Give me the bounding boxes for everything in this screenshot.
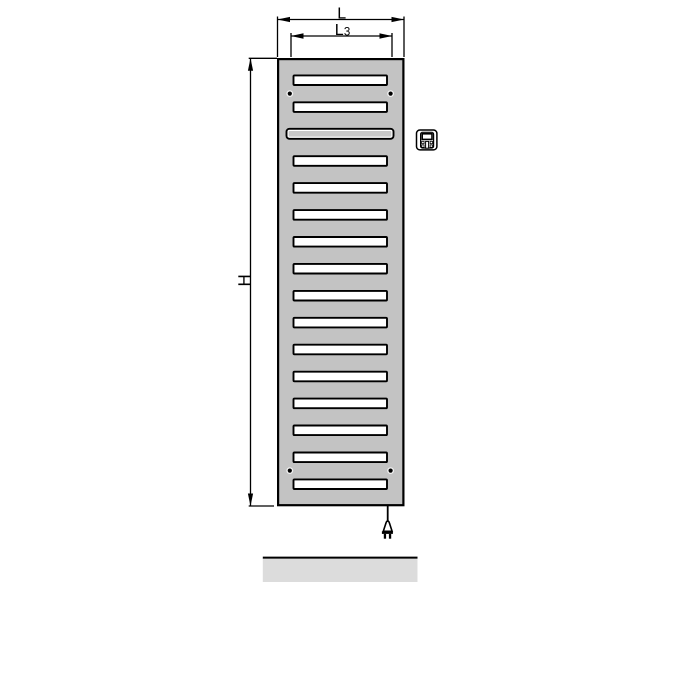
svg-text:3: 3 [344,27,350,39]
